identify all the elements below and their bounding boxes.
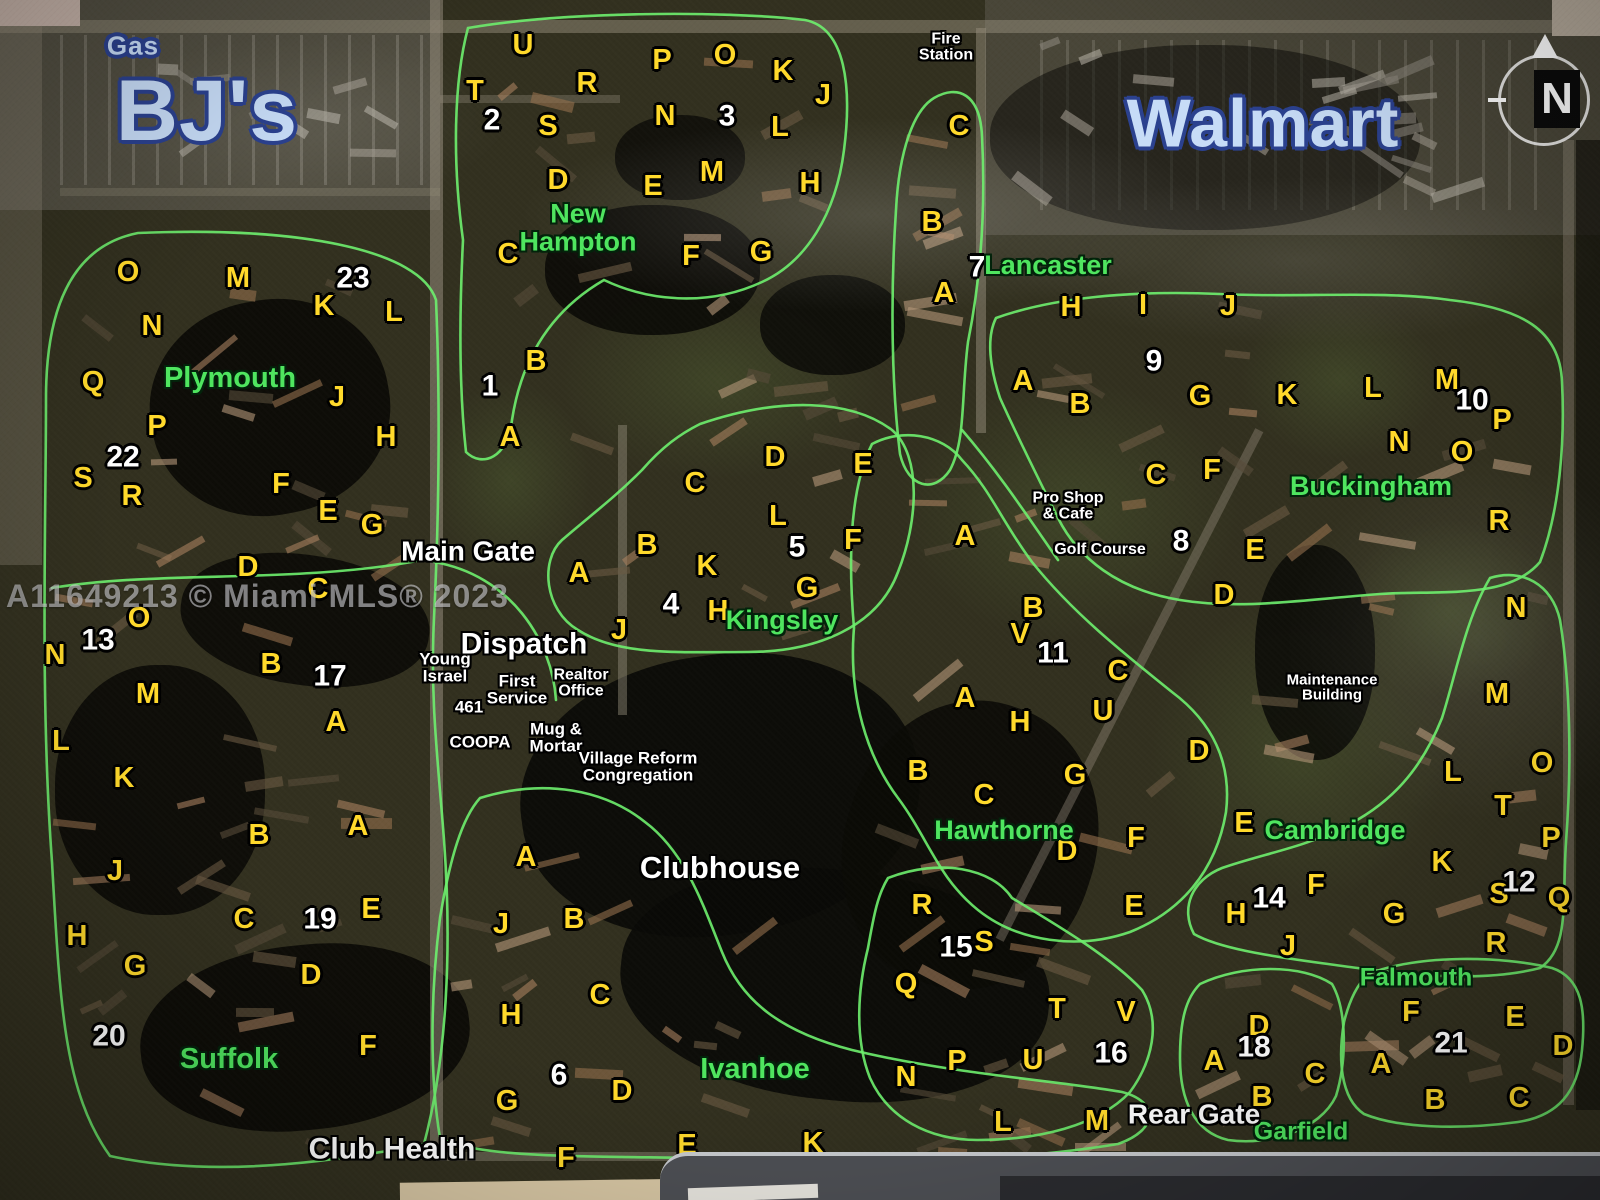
unit-letter: C [234, 905, 255, 935]
poi-label: Maintenance Building [1287, 673, 1378, 704]
unit-letter: L [52, 727, 70, 757]
unit-letter: K [1432, 848, 1453, 878]
block-number: 13 [81, 626, 114, 657]
unit-letter: K [773, 57, 794, 87]
unit-letter: E [361, 895, 380, 925]
poi-label: Rear Gate [1128, 1101, 1260, 1130]
unit-letter: L [1444, 758, 1462, 788]
poi-label: COOPA [449, 733, 510, 750]
community-map-photo: UOPKRTJNSLMDEHCGFBACBAHIJABGKLMNOPRCFEDO… [0, 0, 1600, 1200]
foreground-object-shadow [1000, 1176, 1600, 1200]
unit-letter: Q [82, 368, 105, 398]
unit-letter: M [136, 680, 160, 710]
neighborhood-label: Falmouth [1360, 965, 1473, 991]
unit-letter: A [326, 708, 347, 738]
neighborhood-label: Buckingham [1290, 473, 1452, 501]
unit-letter: K [114, 764, 135, 794]
unit-letter: C [1108, 657, 1129, 687]
block-number: 16 [1094, 1039, 1127, 1070]
block-number: 15 [939, 933, 972, 964]
unit-letter: N [45, 641, 66, 671]
block-number: 18 [1237, 1033, 1270, 1064]
unit-letter: N [1506, 594, 1527, 624]
poi-label: Dispatch [461, 630, 588, 661]
block-number: 21 [1434, 1029, 1467, 1060]
unit-letter: N [1389, 428, 1410, 458]
unit-letter: U [1093, 697, 1114, 727]
unit-letter: S [538, 112, 557, 142]
unit-letter: G [496, 1087, 519, 1117]
unit-letter: T [1494, 792, 1512, 822]
unit-letter: P [1492, 406, 1511, 436]
unit-letter: D [301, 961, 322, 991]
unit-letter: D [1214, 581, 1235, 611]
mls-watermark: A11649213 © Miami MLS® 2023 [6, 578, 509, 615]
unit-letter: O [117, 258, 140, 288]
neighborhood-label: Cambridge [1264, 817, 1405, 845]
poi-label: Village Reform Congregation [579, 750, 698, 785]
unit-letter: C [498, 240, 519, 270]
unit-letter: A [1371, 1050, 1392, 1080]
unit-letter: D [765, 443, 786, 473]
unit-letter: F [359, 1032, 377, 1062]
block-number: 17 [313, 662, 346, 693]
unit-letter: E [1245, 536, 1264, 566]
unit-letter: F [844, 526, 862, 556]
compass-rose: N [1496, 46, 1600, 150]
block-number: 8 [1173, 527, 1190, 558]
unit-letter: J [493, 910, 509, 940]
unit-letter: K [697, 552, 718, 582]
unit-letter: U [1023, 1046, 1044, 1076]
poi-label: Pro Shop & Cafe [1032, 491, 1103, 524]
unit-letter: E [853, 450, 872, 480]
unit-letter: C [949, 112, 970, 142]
neighborhood-label: Kingsley [726, 607, 839, 635]
neighborhood-label: Hawthorne [934, 817, 1074, 845]
unit-letter: K [1277, 381, 1298, 411]
unit-letter: M [226, 264, 250, 294]
unit-letter: G [361, 511, 384, 541]
unit-letter: N [896, 1063, 917, 1093]
poi-label: Mug & Mortar [530, 721, 583, 756]
unit-letter: E [318, 497, 337, 527]
unit-letter: L [994, 1108, 1012, 1138]
block-number: 2 [484, 106, 501, 137]
compass-north-arrow-icon [1532, 34, 1558, 58]
unit-letter: A [1013, 367, 1034, 397]
unit-letter: L [769, 502, 787, 532]
neighborhood-label: New Hampton [520, 200, 637, 255]
unit-letter: K [314, 292, 335, 322]
unit-letter: V [1116, 998, 1135, 1028]
unit-letter: H [376, 423, 397, 453]
unit-letter: G [124, 952, 147, 982]
compass-west-tick [1488, 98, 1506, 102]
unit-letter: R [1486, 929, 1507, 959]
unit-letter: P [147, 412, 166, 442]
unit-letter: A [516, 843, 537, 873]
unit-letter: A [500, 423, 521, 453]
poi-label: Club Health [309, 1135, 476, 1166]
block-number: 1 [482, 372, 499, 403]
unit-letter: H [1010, 708, 1031, 738]
block-number: 9 [1146, 347, 1163, 378]
unit-letter: I [1139, 291, 1147, 321]
unit-letter: L [385, 298, 403, 328]
unit-letter: H [501, 1001, 522, 1031]
unit-letter: H [1061, 293, 1082, 323]
unit-letter: F [1307, 871, 1325, 901]
unit-letter: P [947, 1047, 966, 1077]
unit-letter: C [590, 981, 611, 1011]
block-number: 6 [551, 1061, 568, 1092]
unit-letter: D [1189, 737, 1210, 767]
unit-letter: H [800, 169, 821, 199]
unit-letter: B [261, 650, 282, 680]
unit-letter: B [922, 208, 943, 238]
unit-letter: B [637, 531, 658, 561]
unit-letter: E [1234, 809, 1253, 839]
unit-letter: A [1204, 1047, 1225, 1077]
unit-letter: O [1531, 749, 1554, 779]
unit-letter: S [974, 928, 993, 958]
block-number: 23 [336, 264, 369, 295]
unit-letter: B [526, 347, 547, 377]
store-label: Walmart [1127, 89, 1400, 158]
unit-letter: E [643, 172, 662, 202]
neighborhood-label: Lancaster [984, 252, 1112, 280]
store-label: BJ's [116, 68, 298, 156]
unit-letter: J [611, 616, 627, 646]
poi-label: First Service [487, 673, 548, 708]
store-label: Gas [107, 33, 159, 60]
unit-letter: B [564, 905, 585, 935]
block-number: 11 [1037, 639, 1069, 670]
unit-letter: F [1402, 998, 1420, 1028]
poi-label: Clubhouse [640, 852, 800, 884]
unit-letter: J [815, 81, 831, 111]
block-number: 14 [1252, 884, 1285, 915]
unit-letter: C [1146, 461, 1167, 491]
block-number: 20 [92, 1022, 125, 1053]
unit-letter: O [714, 41, 737, 71]
unit-letter: M [1085, 1107, 1109, 1137]
unit-letter: J [329, 383, 345, 413]
block-number: 12 [1502, 868, 1535, 899]
unit-letter: B [1425, 1086, 1446, 1116]
unit-letter: B [908, 757, 929, 787]
block-number: 4 [663, 590, 680, 621]
compass-north-label: N [1534, 70, 1580, 128]
unit-letter: O [1451, 438, 1474, 468]
unit-letter: F [682, 242, 700, 272]
block-number: 22 [106, 443, 139, 474]
unit-letter: G [750, 238, 773, 268]
poi-label: Realtor Office [553, 668, 608, 701]
unit-letter: A [955, 684, 976, 714]
unit-letter: N [142, 312, 163, 342]
unit-letter: J [1220, 292, 1236, 322]
poi-label: Main Gate [401, 538, 535, 567]
unit-letter: Q [1548, 884, 1571, 914]
neighborhood-label: Ivanhoe [700, 1055, 810, 1085]
unit-letter: P [1541, 824, 1560, 854]
unit-letter: C [685, 469, 706, 499]
unit-letter: C [1305, 1060, 1326, 1090]
neighborhood-label: Garfield [1254, 1119, 1348, 1145]
poi-label: Fire Station [919, 32, 973, 65]
unit-letter: F [1127, 824, 1145, 854]
unit-letter: M [700, 158, 724, 188]
unit-letter: A [348, 812, 369, 842]
unit-letter: R [912, 891, 933, 921]
unit-letter: G [1064, 761, 1087, 791]
block-number: 5 [789, 533, 806, 564]
unit-letter: T [1048, 995, 1066, 1025]
unit-letter: Q [895, 970, 918, 1000]
block-number: 7 [969, 253, 986, 284]
unit-letter: H [67, 922, 88, 952]
unit-letter: D [1553, 1032, 1574, 1062]
unit-letter: T [466, 77, 484, 107]
unit-letter: M [1485, 680, 1509, 710]
unit-letter: F [557, 1144, 575, 1174]
unit-letter: D [548, 166, 569, 196]
unit-letter: N [655, 102, 676, 132]
unit-letter: A [955, 522, 976, 552]
unit-letter: C [974, 781, 995, 811]
unit-letter: F [1203, 456, 1221, 486]
unit-letter: R [1489, 507, 1510, 537]
poi-label: 461 [455, 698, 483, 715]
unit-letter: L [1364, 374, 1382, 404]
poi-label: Young Israel [419, 651, 471, 686]
unit-letter: P [652, 46, 671, 76]
unit-letter: V [1010, 620, 1029, 650]
unit-letter: J [107, 857, 123, 887]
unit-letter: G [796, 574, 819, 604]
unit-letter: A [569, 559, 590, 589]
unit-letter: B [249, 821, 270, 851]
neighborhood-label: Suffolk [180, 1045, 278, 1075]
poi-label: Golf Course [1054, 542, 1146, 558]
neighborhood-label: Plymouth [164, 364, 296, 394]
unit-letter: G [1383, 900, 1406, 930]
unit-letter: S [73, 464, 92, 494]
unit-letter: B [1070, 390, 1091, 420]
unit-letter: L [771, 113, 789, 143]
unit-letter: R [122, 482, 143, 512]
unit-letter: D [612, 1077, 633, 1107]
block-number: 19 [303, 905, 336, 936]
unit-letter: R [577, 69, 598, 99]
unit-letter: H [1226, 900, 1247, 930]
unit-letter: C [1509, 1084, 1530, 1114]
block-number: 3 [719, 102, 736, 133]
unit-letter: U [513, 31, 534, 61]
unit-letter: A [934, 279, 955, 309]
block-number: 10 [1455, 386, 1488, 417]
unit-letter: F [272, 470, 290, 500]
unit-letter: E [1505, 1003, 1524, 1033]
unit-letter: J [1280, 932, 1296, 962]
unit-letter: E [1124, 892, 1143, 922]
unit-letter: G [1189, 382, 1212, 412]
